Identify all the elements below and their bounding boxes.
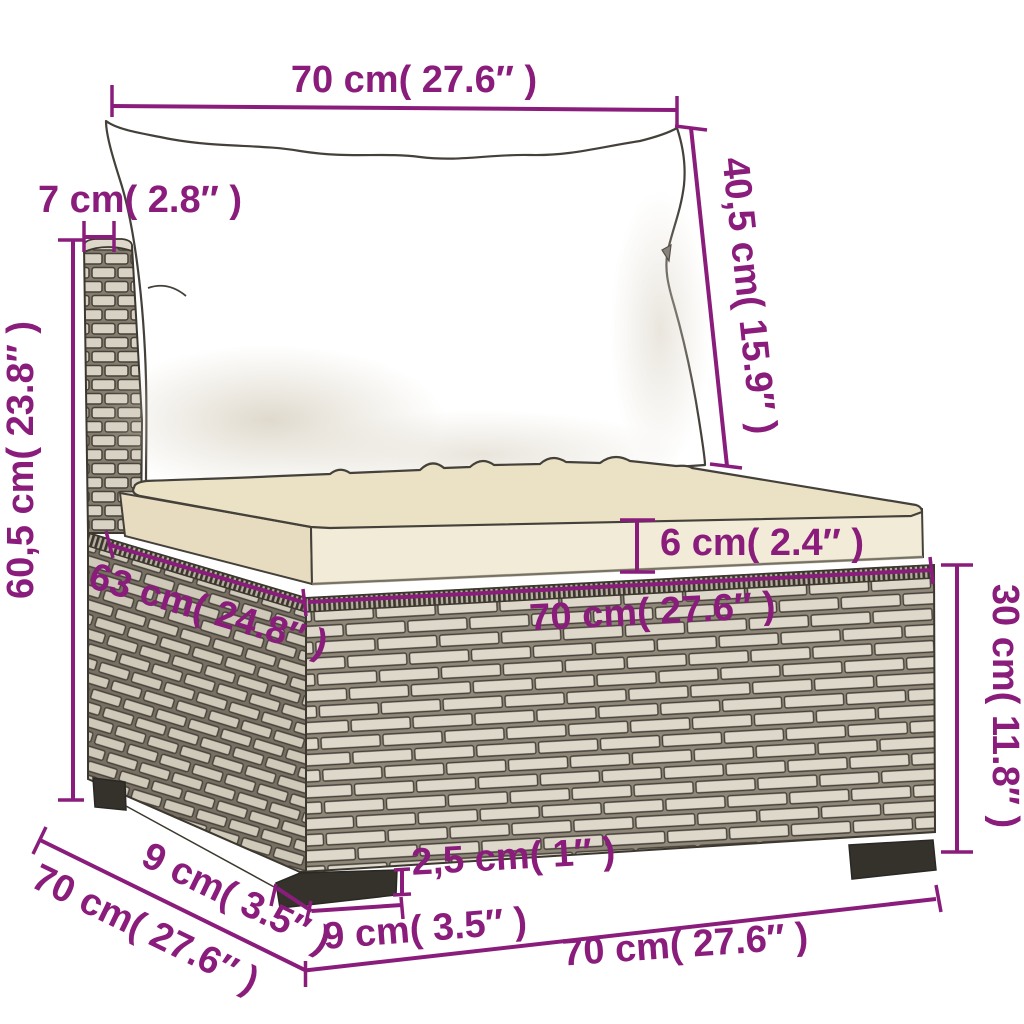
svg-text:7 cm( 2.8″ ): 7 cm( 2.8″ ) bbox=[38, 179, 242, 221]
svg-text:70 cm( 27.6″ ): 70 cm( 27.6″ ) bbox=[291, 59, 537, 101]
svg-text:6 cm( 2.4″ ): 6 cm( 2.4″ ) bbox=[660, 522, 864, 564]
svg-text:30 cm( 11.8″ ): 30 cm( 11.8″ ) bbox=[984, 584, 1024, 828]
svg-text:60,5 cm( 23.8″ ): 60,5 cm( 23.8″ ) bbox=[0, 321, 42, 599]
